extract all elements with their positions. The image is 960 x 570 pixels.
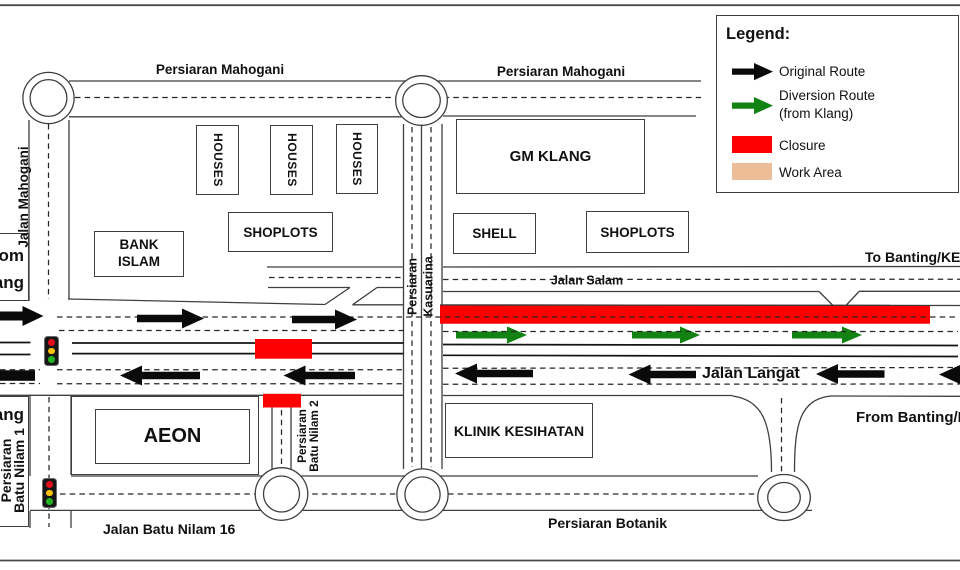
svg-text:Jalan Salam: Jalan Salam	[551, 274, 623, 288]
